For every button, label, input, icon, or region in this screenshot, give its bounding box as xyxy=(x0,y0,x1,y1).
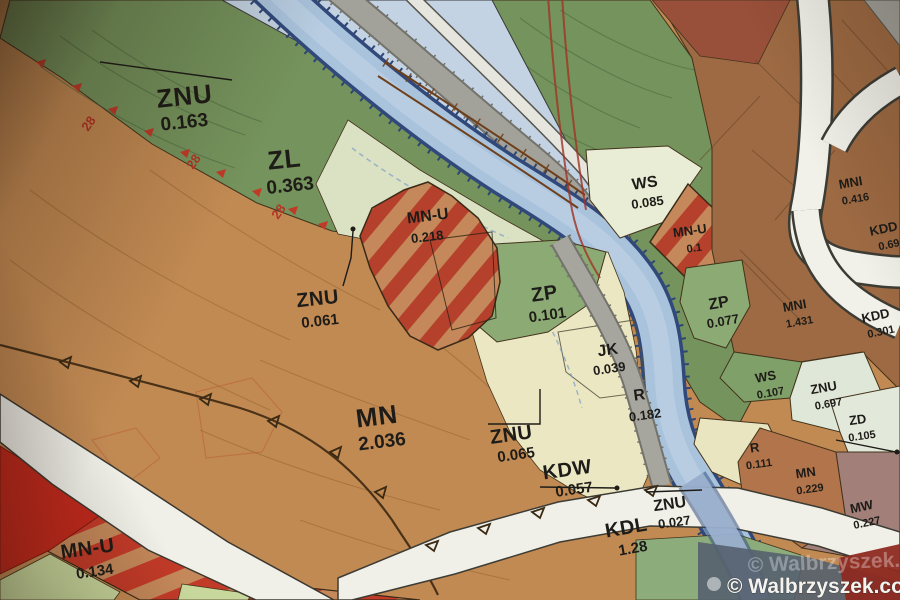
svg-text:ZNU: ZNU xyxy=(295,286,340,312)
svg-text:MN: MN xyxy=(795,464,817,482)
svg-text:WS: WS xyxy=(631,173,659,193)
svg-text:ZL: ZL xyxy=(266,142,303,175)
zone-label-znu-0163: ZNU 0.163 xyxy=(155,78,217,136)
watermark-icon xyxy=(707,577,721,591)
svg-text:ZNU: ZNU xyxy=(155,78,214,114)
svg-text:0.1: 0.1 xyxy=(686,242,703,256)
watermark-text: © Walbrzyszek.com xyxy=(727,575,900,598)
svg-text:JK: JK xyxy=(596,341,619,361)
svg-text:MN: MN xyxy=(354,399,400,434)
svg-text:ZP: ZP xyxy=(530,281,559,306)
svg-text:ZP: ZP xyxy=(707,293,730,313)
svg-text:ZD: ZD xyxy=(848,411,867,428)
zoning-map-photo: 28 28 28 ZNU 0.163 ZL 0.363 MN-U 0.218 W… xyxy=(0,0,900,600)
zoning-map-canvas: 28 28 28 ZNU 0.163 ZL 0.363 MN-U 0.218 W… xyxy=(0,0,900,600)
